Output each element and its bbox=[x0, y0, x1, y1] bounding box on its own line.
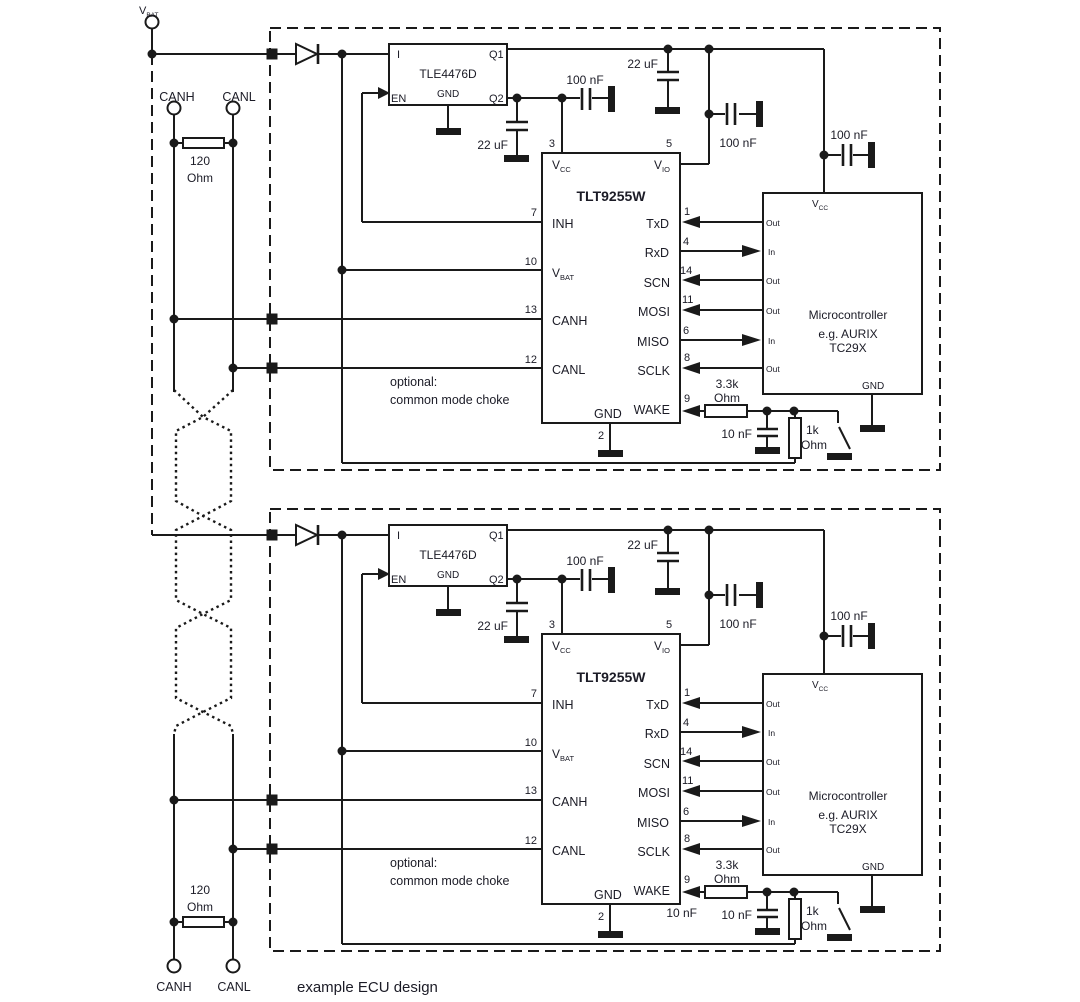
tlt-wake-pin-label: WAKE bbox=[634, 403, 670, 417]
tle-pin-i-label: I bbox=[397, 530, 400, 542]
micro-out-mosi-label: Out bbox=[766, 787, 780, 797]
micro-out-txd-label: Out bbox=[766, 699, 780, 709]
pin1-number: 1 bbox=[684, 206, 690, 218]
resistor-1k-value: 1k bbox=[806, 423, 820, 437]
tlt-canl-pin-label: CANL bbox=[552, 844, 585, 858]
tle-pin-q2-label: Q2 bbox=[489, 574, 504, 586]
twisted-pair-wire-a bbox=[174, 390, 231, 734]
resistor-3k3-value: 3.3k bbox=[716, 377, 740, 391]
termination-bottom-unit: Ohm bbox=[187, 900, 213, 914]
tle-pin-i-label: I bbox=[397, 49, 400, 61]
pin11-number: 11 bbox=[682, 294, 693, 306]
micro-name-line1: Microcontroller bbox=[809, 308, 888, 322]
tlt-part-name: TLT9255W bbox=[577, 669, 647, 685]
choke-note-line2: common mode choke bbox=[390, 393, 510, 407]
canh-top-label: CANH bbox=[159, 90, 194, 104]
pin10-number: 10 bbox=[525, 737, 537, 749]
micro-out-mosi-label: Out bbox=[766, 306, 780, 316]
pin8-number: 8 bbox=[684, 833, 690, 845]
cap-100nF-vcc-label: 100 nF bbox=[566, 73, 603, 87]
canl-terminal-bottom bbox=[227, 960, 240, 973]
pin12-number: 12 bbox=[525, 835, 537, 847]
pin12-number: 12 bbox=[525, 354, 537, 366]
canh-bottom-label: CANH bbox=[156, 980, 191, 994]
micro-name-line1: Microcontroller bbox=[809, 789, 888, 803]
tlt-gnd-pin-label: GND bbox=[594, 407, 622, 421]
pin2-number: 2 bbox=[598, 911, 604, 923]
micro-out-sclk-label: Out bbox=[766, 364, 780, 374]
tle-pin-en-label: EN bbox=[391, 574, 406, 586]
pin6-number: 6 bbox=[683, 806, 689, 818]
resistor-1k-unit: Ohm bbox=[801, 919, 827, 933]
tlt-wake-pin-label: WAKE bbox=[634, 884, 670, 898]
cap-22uF-q2-label: 22 uF bbox=[477, 138, 508, 152]
tlt-mosi-pin-label: MOSI bbox=[638, 786, 670, 800]
micro-in-miso-label: In bbox=[768, 817, 775, 827]
tlt-scn-pin-label: SCN bbox=[644, 757, 670, 771]
choke-note-line1: optional: bbox=[390, 375, 437, 389]
pin2-number: 2 bbox=[598, 430, 604, 442]
pin13-number: 13 bbox=[525, 785, 537, 797]
tle-pin-q1-label: Q1 bbox=[489, 49, 504, 61]
tlt-miso-pin-label: MISO bbox=[637, 816, 669, 830]
pin14-number: 14 bbox=[680, 265, 692, 277]
micro-name-line2: e.g. AURIX bbox=[818, 327, 877, 341]
cap-22uF-q2-label: 22 uF bbox=[477, 619, 508, 633]
tlt-mosi-pin-label: MOSI bbox=[638, 305, 670, 319]
resistor-1k-unit: Ohm bbox=[801, 438, 827, 452]
tlt-canl-pin-label: CANL bbox=[552, 363, 585, 377]
cap-100nF-micro-label: 100 nF bbox=[830, 128, 867, 142]
tle-pin-gnd-label: GND bbox=[437, 570, 459, 581]
micro-name-line3: TC29X bbox=[829, 822, 866, 836]
cap-100nF-vio-label: 100 nF bbox=[719, 617, 756, 631]
tlt-txd-pin-label: TxD bbox=[646, 698, 669, 712]
tlt-inh-pin-label: INH bbox=[552, 698, 574, 712]
micro-name-line3: TC29X bbox=[829, 341, 866, 355]
tlt-sclk-pin-label: SCLK bbox=[637, 364, 670, 378]
tlt-gnd-pin-label: GND bbox=[594, 888, 622, 902]
tle-pin-gnd-label: GND bbox=[437, 89, 459, 100]
pin11-number: 11 bbox=[682, 775, 693, 787]
vbat-terminal-label: VBAT bbox=[139, 5, 159, 19]
micro-out-txd-label: Out bbox=[766, 218, 780, 228]
tle-pin-en-label: EN bbox=[391, 93, 406, 105]
harness-labels: VBAT CANH CANL 120 Ohm 120 Ohm CANH CANL… bbox=[139, 5, 438, 996]
pin9-number: 9 bbox=[684, 874, 690, 886]
pin9-number: 9 bbox=[684, 393, 690, 405]
resistor-3k3-value: 3.3k bbox=[716, 858, 740, 872]
choke-note-line1: optional: bbox=[390, 856, 437, 870]
pin3-number: 3 bbox=[549, 138, 555, 150]
micro-in-miso-label: In bbox=[768, 336, 775, 346]
micro-in-rxd-label: In bbox=[768, 728, 775, 738]
pin4-number: 4 bbox=[683, 236, 689, 248]
tle-part-name: TLE4476D bbox=[419, 67, 477, 81]
pin4-number: 4 bbox=[683, 717, 689, 729]
tle-pin-q2-label: Q2 bbox=[489, 93, 504, 105]
termination-top-unit: Ohm bbox=[187, 171, 213, 185]
pin7-number: 7 bbox=[531, 688, 537, 700]
pin1-number: 1 bbox=[684, 687, 690, 699]
ecu2-circuit bbox=[152, 509, 940, 951]
cap-22uF-q1-label: 22 uF bbox=[627, 57, 658, 71]
pin3-number: 3 bbox=[549, 619, 555, 631]
pin5-number: 5 bbox=[666, 619, 672, 631]
pin8-number: 8 bbox=[684, 352, 690, 364]
micro-in-rxd-label: In bbox=[768, 247, 775, 257]
cap-10nF-label: 10 nF bbox=[721, 908, 752, 922]
twisted-pair-wire-b bbox=[176, 390, 233, 734]
diagram-caption: example ECU design bbox=[297, 979, 438, 996]
tlt-canh-pin-label: CANH bbox=[552, 795, 587, 809]
tlt-miso-pin-label: MISO bbox=[637, 335, 669, 349]
micro-out-scn-label: Out bbox=[766, 757, 780, 767]
resistor-3k3-unit: Ohm bbox=[714, 391, 740, 405]
resistor-1k-value: 1k bbox=[806, 904, 820, 918]
tle-part-name: TLE4476D bbox=[419, 548, 477, 562]
termination-resistor-bottom bbox=[183, 917, 224, 927]
termination-top-value: 120 bbox=[190, 154, 210, 168]
tlt-sclk-pin-label: SCLK bbox=[637, 845, 670, 859]
micro-out-scn-label: Out bbox=[766, 276, 780, 286]
pin5-number: 5 bbox=[666, 138, 672, 150]
pin14-number: 14 bbox=[680, 746, 692, 758]
termination-resistor-top bbox=[183, 138, 224, 148]
schematic-canvas: VBAT CANH CANL 120 Ohm 120 Ohm CANH CANL… bbox=[0, 0, 1080, 1002]
choke-note-line2: common mode choke bbox=[390, 874, 510, 888]
tlt-rxd-pin-label: RxD bbox=[645, 246, 669, 260]
canh-terminal-bottom bbox=[168, 960, 181, 973]
canl-top-label: CANL bbox=[222, 90, 255, 104]
cap-10nF-label: 10 nF bbox=[721, 427, 752, 441]
tlt-txd-pin-label: TxD bbox=[646, 217, 669, 231]
pin7-number: 7 bbox=[531, 207, 537, 219]
cap-22uF-q1-label: 22 uF bbox=[627, 538, 658, 552]
ecu1-circuit bbox=[152, 28, 940, 470]
micro-gnd-pin-label: GND bbox=[862, 862, 884, 873]
cap-100nF-vio-label: 100 nF bbox=[719, 136, 756, 150]
stray-10nF-label: 10 nF bbox=[666, 906, 697, 920]
tlt-scn-pin-label: SCN bbox=[644, 276, 670, 290]
micro-name-line2: e.g. AURIX bbox=[818, 808, 877, 822]
micro-out-sclk-label: Out bbox=[766, 845, 780, 855]
pin13-number: 13 bbox=[525, 304, 537, 316]
resistor-3k3-unit: Ohm bbox=[714, 872, 740, 886]
micro-gnd-pin-label: GND bbox=[862, 381, 884, 392]
tlt-inh-pin-label: INH bbox=[552, 217, 574, 231]
cap-100nF-micro-label: 100 nF bbox=[830, 609, 867, 623]
pin6-number: 6 bbox=[683, 325, 689, 337]
pin10-number: 10 bbox=[525, 256, 537, 268]
tlt-part-name: TLT9255W bbox=[577, 188, 647, 204]
tle-pin-q1-label: Q1 bbox=[489, 530, 504, 542]
tlt-rxd-pin-label: RxD bbox=[645, 727, 669, 741]
tlt-canh-pin-label: CANH bbox=[552, 314, 587, 328]
cap-100nF-vcc-label: 100 nF bbox=[566, 554, 603, 568]
schematic-page: VBAT CANH CANL 120 Ohm 120 Ohm CANH CANL… bbox=[0, 0, 1080, 1002]
termination-bottom-value: 120 bbox=[190, 883, 210, 897]
canl-bottom-label: CANL bbox=[217, 980, 250, 994]
